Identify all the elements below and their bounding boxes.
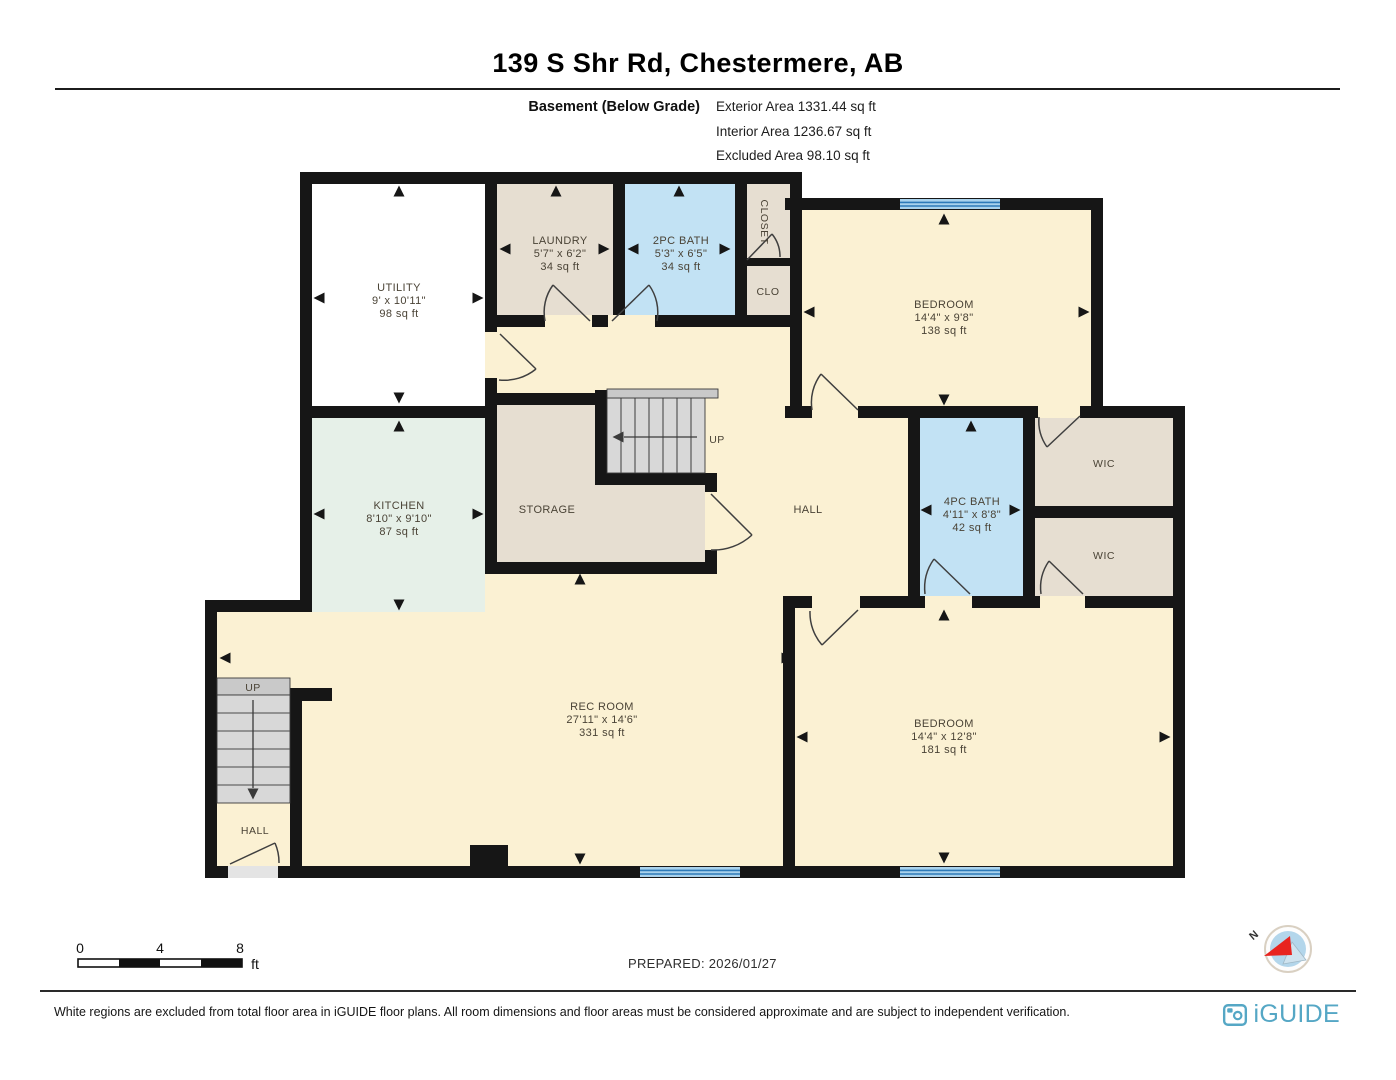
label-bedroom-upper-name: BEDROOM xyxy=(914,299,974,311)
label-4pc-bath-area: 42 sq ft xyxy=(952,522,991,534)
label-rec-room-dims: 27'11" x 14'6" xyxy=(566,714,637,726)
label-utility-dims: 9' x 10'11" xyxy=(372,295,426,307)
label-utility-name: UTILITY xyxy=(377,282,421,294)
label-kitchen-area: 87 sq ft xyxy=(379,526,418,538)
scale-bar: 0 4 8 ft xyxy=(76,940,259,972)
scale-unit: ft xyxy=(251,956,259,972)
label-rec-room-name: REC ROOM xyxy=(570,701,634,713)
label-laundry-name: LAUNDRY xyxy=(532,235,587,247)
label-wic-lower: WIC xyxy=(1093,550,1115,562)
prepared-date: PREPARED: 2026/01/27 xyxy=(628,956,777,971)
iguide-brand-text: iGUIDE xyxy=(1253,1000,1340,1029)
window xyxy=(897,198,1003,210)
label-storage: STORAGE xyxy=(519,504,575,516)
label-wic-upper: WIC xyxy=(1093,458,1115,470)
label-2pc-bath-area: 34 sq ft xyxy=(661,261,700,273)
label-bedroom-upper-area: 138 sq ft xyxy=(921,325,967,337)
label-utility-area: 98 sq ft xyxy=(379,308,418,320)
iguide-camera-icon xyxy=(1222,1002,1248,1028)
label-rec-room-area: 331 sq ft xyxy=(579,727,625,739)
label-bedroom-lower-dims: 14'4" x 12'8" xyxy=(911,731,977,743)
compass: N xyxy=(1247,926,1311,972)
label-closet: CLOSET xyxy=(758,199,770,244)
stair-up-label: UP xyxy=(245,682,261,694)
label-kitchen-dims: 8'10" x 9'10" xyxy=(366,513,432,525)
label-kitchen-name: KITCHEN xyxy=(373,500,424,512)
floorplan-page: 139 S Shr Rd, Chestermere, AB Basement (… xyxy=(0,0,1396,1080)
window xyxy=(897,866,1003,878)
label-bedroom-lower-area: 181 sq ft xyxy=(921,744,967,756)
label-laundry-area: 34 sq ft xyxy=(540,261,579,273)
label-bedroom-upper-dims: 14'4" x 9'8" xyxy=(914,312,973,324)
stair-up-label: UP xyxy=(709,434,725,446)
window xyxy=(637,866,743,878)
label-bedroom-lower-name: BEDROOM xyxy=(914,718,974,730)
label-clo: CLO xyxy=(756,286,779,298)
footer: White regions are excluded from total fl… xyxy=(40,990,1356,1029)
scale-tick-0: 0 xyxy=(76,940,84,956)
room-fills xyxy=(205,172,1185,878)
label-laundry-dims: 5'7" x 6'2" xyxy=(534,248,587,260)
label-2pc-bath-dims: 5'3" x 6'5" xyxy=(655,248,708,260)
label-hall-lower: HALL xyxy=(241,825,269,837)
label-2pc-bath-name: 2PC BATH xyxy=(653,235,709,247)
iguide-logo: iGUIDE xyxy=(1222,1000,1356,1029)
staircase-lower: UP xyxy=(217,678,290,803)
scale-tick-4: 4 xyxy=(156,940,164,956)
label-hall: HALL xyxy=(793,504,822,516)
label-4pc-bath-dims: 4'11" x 8'8" xyxy=(943,509,1001,521)
footer-disclaimer: White regions are excluded from total fl… xyxy=(40,1002,1070,1019)
floorplan-drawing: UP UP xyxy=(0,0,1396,1080)
compass-north-label: N xyxy=(1247,929,1261,943)
scale-tick-8: 8 xyxy=(236,940,244,956)
label-4pc-bath-name: 4PC BATH xyxy=(944,496,1000,508)
stair-railing xyxy=(607,389,718,398)
